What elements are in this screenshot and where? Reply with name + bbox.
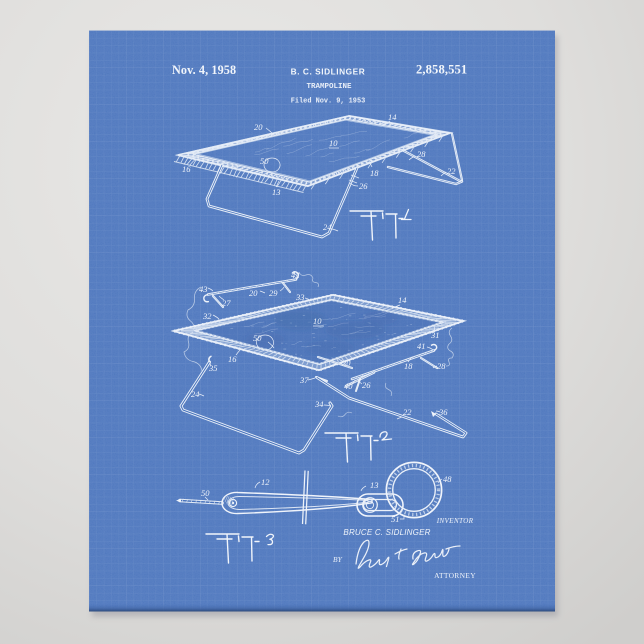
svg-text:18: 18 bbox=[404, 361, 413, 371]
svg-text:TRAMPOLINE: TRAMPOLINE bbox=[306, 83, 352, 91]
svg-text:20: 20 bbox=[254, 122, 263, 132]
svg-text:B. C. SIDLINGER: B. C. SIDLINGER bbox=[291, 67, 366, 77]
svg-text:12: 12 bbox=[261, 477, 270, 487]
svg-text:14: 14 bbox=[388, 112, 397, 122]
svg-text:18: 18 bbox=[370, 168, 379, 178]
svg-text:42: 42 bbox=[291, 270, 300, 280]
svg-text:33: 33 bbox=[295, 292, 305, 302]
svg-text:24: 24 bbox=[323, 222, 332, 232]
svg-text:28: 28 bbox=[437, 361, 446, 371]
svg-text:16: 16 bbox=[228, 354, 237, 364]
svg-text:26: 26 bbox=[362, 380, 371, 390]
svg-text:22: 22 bbox=[447, 166, 456, 176]
svg-text:INVENTOR: INVENTOR bbox=[436, 517, 474, 525]
svg-text:32: 32 bbox=[202, 311, 212, 321]
svg-text:43: 43 bbox=[199, 284, 208, 294]
svg-text:26: 26 bbox=[359, 181, 368, 191]
svg-text:40: 40 bbox=[344, 381, 353, 391]
svg-text:29: 29 bbox=[269, 288, 278, 298]
svg-text:37: 37 bbox=[299, 375, 309, 385]
svg-text:28: 28 bbox=[417, 149, 426, 159]
svg-text:10: 10 bbox=[313, 316, 322, 326]
svg-text:48: 48 bbox=[443, 474, 452, 484]
svg-text:31: 31 bbox=[430, 330, 440, 340]
svg-text:BY: BY bbox=[333, 555, 343, 564]
svg-text:30: 30 bbox=[341, 358, 351, 368]
svg-text:BRUCE C. SIDLINGER: BRUCE C. SIDLINGER bbox=[343, 528, 430, 537]
svg-text:10: 10 bbox=[329, 138, 338, 148]
svg-text:Filed Nov. 9, 1953: Filed Nov. 9, 1953 bbox=[291, 98, 365, 106]
svg-text:50: 50 bbox=[260, 156, 269, 166]
svg-text:51: 51 bbox=[391, 514, 400, 524]
svg-text:20: 20 bbox=[249, 288, 258, 298]
svg-text:2,858,551: 2,858,551 bbox=[416, 63, 467, 77]
svg-text:34: 34 bbox=[314, 399, 324, 409]
svg-text:13: 13 bbox=[272, 187, 281, 197]
svg-text:50: 50 bbox=[253, 333, 262, 343]
svg-text:Nov. 4, 1958: Nov. 4, 1958 bbox=[172, 63, 236, 77]
svg-text:13: 13 bbox=[370, 480, 379, 490]
svg-text:16: 16 bbox=[182, 164, 191, 174]
svg-text:41: 41 bbox=[417, 341, 426, 351]
svg-text:35: 35 bbox=[208, 363, 218, 373]
svg-text:24: 24 bbox=[191, 389, 200, 399]
svg-text:22: 22 bbox=[403, 407, 412, 417]
svg-text:14: 14 bbox=[398, 295, 407, 305]
svg-text:ATTORNEY: ATTORNEY bbox=[434, 571, 476, 580]
svg-text:50: 50 bbox=[201, 488, 210, 498]
